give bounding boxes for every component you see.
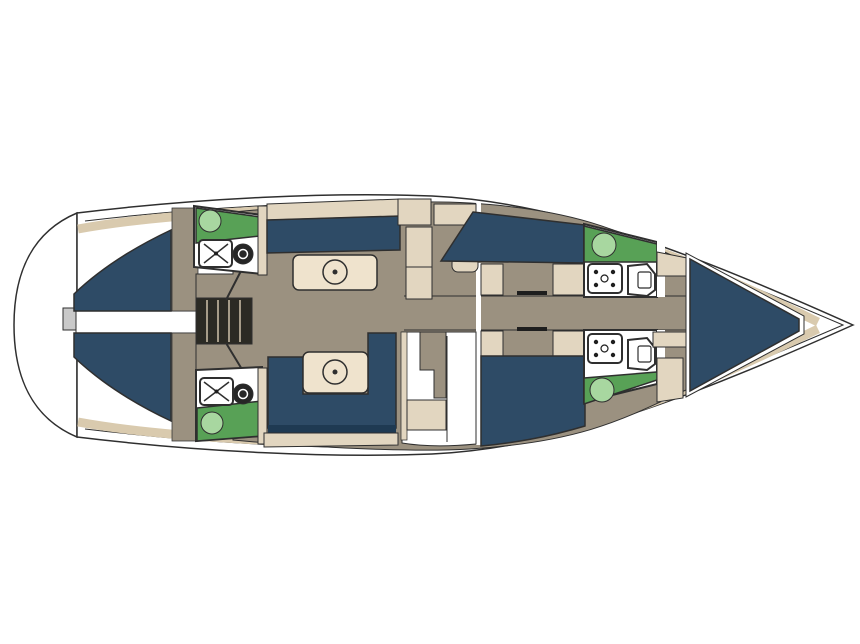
table-dot (333, 370, 338, 375)
aft-corridor-starboard (172, 333, 198, 441)
sink-dot (611, 353, 615, 357)
sink-dot (611, 270, 615, 274)
boat-floor-plan-diagram (0, 0, 860, 644)
sink-dot (594, 283, 598, 287)
table-dot (333, 270, 338, 275)
nav-station-desk (407, 400, 446, 430)
forward-head-starboard-shower-drain (590, 378, 614, 402)
head-wall-port (258, 206, 267, 275)
nav-station-strip (401, 332, 407, 440)
sink-dot (594, 353, 598, 357)
aft-head-starboard-shower-drain (201, 412, 223, 434)
sink-center-dot (215, 390, 219, 394)
forward-head-starboard-sink (588, 334, 622, 363)
sink-dot (611, 283, 615, 287)
sink-dot (611, 340, 615, 344)
galley-counter-c (406, 227, 432, 299)
aft-head-port-shower-drain (199, 210, 221, 232)
galley-counter-a (398, 199, 431, 225)
aft-head-starboard-toilet (233, 384, 253, 404)
sink-dot (594, 340, 598, 344)
salon-settee-port (267, 216, 400, 253)
toilet-seat (638, 346, 651, 362)
drawer-handle (517, 291, 547, 295)
yacht-layout-page (0, 0, 860, 644)
sink-dot (594, 270, 598, 274)
locker-block (481, 264, 503, 295)
forward-head-port-shower-drain (592, 233, 616, 257)
locker-block (481, 331, 503, 356)
companionway-grate (196, 298, 252, 344)
aft-center-passage (76, 311, 198, 333)
sink-center-dot (214, 252, 218, 256)
drawer-handle (517, 327, 547, 331)
salon-backrest-starboard (264, 433, 398, 447)
settee-edge-strip (268, 425, 396, 433)
bow-shelf-starboard (657, 358, 683, 402)
locker-block (553, 264, 585, 295)
toilet-seat (638, 272, 651, 288)
locker-block (553, 331, 585, 356)
forward-head-port-sink (588, 264, 622, 293)
aft-head-port-toilet (233, 244, 253, 264)
bow-shelf-center (653, 332, 687, 347)
